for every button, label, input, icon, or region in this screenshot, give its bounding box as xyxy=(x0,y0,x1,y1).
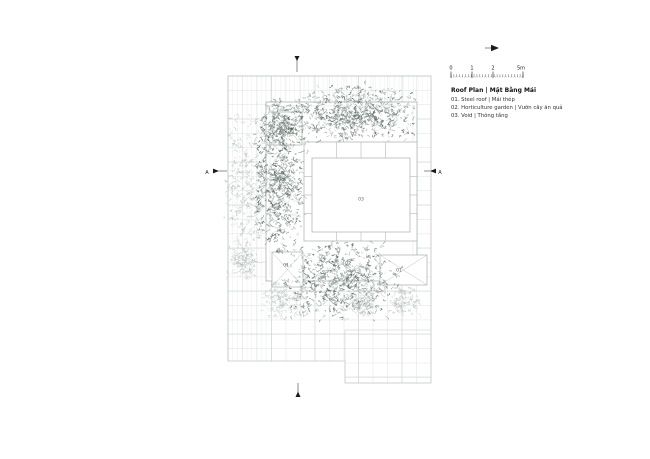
scale-label-2: 2 xyxy=(491,66,494,72)
section-marker-a-left: A xyxy=(205,169,227,176)
section-arrow-icon xyxy=(296,392,301,398)
keynote-01-top-panel: 01 xyxy=(284,126,290,132)
keynote-03-void: 03 xyxy=(358,197,364,203)
lower-roof-outline xyxy=(345,330,431,383)
section-label: A xyxy=(438,170,442,176)
keynote-02-bottom-garden: 02 xyxy=(345,261,351,267)
legend-item-steel-roof: 01. Steel roof | Mái thép xyxy=(451,96,515,103)
section-marker-bottom xyxy=(296,383,301,397)
section-label: A xyxy=(205,170,209,176)
scale-label-0: 0 xyxy=(449,66,452,72)
section-arrow-icon xyxy=(213,169,219,174)
section-marker-a-right: A xyxy=(424,169,442,176)
legend-item-void: 03. Void | Thông tầng xyxy=(451,111,508,119)
legend: Roof Plan | Mặt Bằng Mái 01. Steel roof … xyxy=(451,87,563,119)
drawing-title: Roof Plan | Mặt Bằng Mái xyxy=(451,87,536,94)
scale-label-1: 1 xyxy=(470,66,473,72)
scale-bar: 0 1 2 5m xyxy=(449,66,525,79)
scale-label-5m: 5m xyxy=(517,66,525,72)
architectural-sheet: A A 0 1 2 5m xyxy=(0,0,650,459)
keynote-02-top-garden: 02 xyxy=(351,132,357,138)
steel-roof-panel-bottom-right xyxy=(380,255,427,285)
keynote-01-bottom-right-panel: 01 xyxy=(396,268,402,274)
roof-plan-drawing: A A 0 1 2 5m xyxy=(0,0,650,459)
keynote-01-bottom-left-panel: 01 xyxy=(283,263,289,269)
legend-item-horticulture-garden: 02. Horticulture garden | Vườn cây ăn qu… xyxy=(451,104,563,111)
void-skylight xyxy=(304,142,417,241)
section-marker-top xyxy=(295,56,300,72)
north-arrow-icon xyxy=(485,45,499,51)
